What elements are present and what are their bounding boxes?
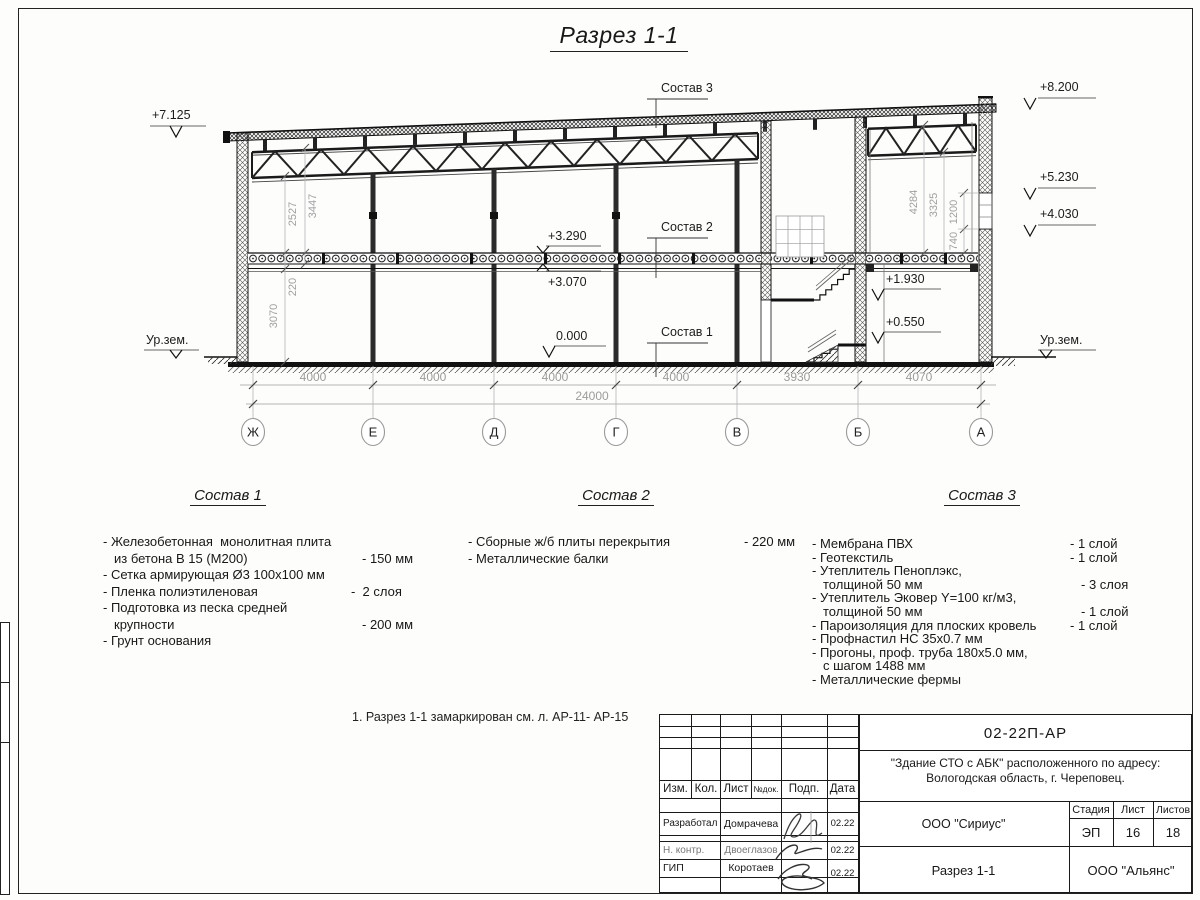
vdim-3325: 3325 — [928, 193, 940, 217]
tb-col-list: Лист — [721, 780, 751, 798]
tb-sheets-label: Листов — [1153, 801, 1193, 818]
tb-stage-label: Стадия — [1069, 801, 1113, 818]
composition-1: Состав 1 - Железобетонная монолитная пли… — [103, 487, 413, 650]
binding-box-1 — [0, 622, 10, 684]
span-dim: 4000 — [420, 370, 447, 384]
tb-sheet-value: 16 — [1113, 818, 1153, 846]
layer-label-3: Состав 3 — [661, 81, 713, 95]
elevation-label: +8.200 — [1040, 80, 1079, 94]
tb-sheet-label: Лист — [1113, 801, 1153, 818]
composition-item: толщиной 50 мм- 1 слой — [812, 605, 1142, 619]
span-dim: 4000 — [300, 370, 327, 384]
composition-item: - Геотекстиль- 1 слой — [812, 551, 1142, 565]
span-dim: 4000 — [663, 370, 690, 384]
composition-item: - Пароизоляция для плоских кровель- 1 сл… — [812, 619, 1142, 633]
tb-col-kol: Кол. — [691, 780, 721, 798]
vdim-3070: 3070 — [268, 304, 280, 328]
tb-project-line1: "Здание СТО с АБК" расположенного по адр… — [858, 755, 1193, 770]
composition-item: - Утеплитель Пеноплэкс, — [812, 564, 1142, 578]
axis-label: В — [733, 425, 742, 440]
title-block: Изм. Кол. Лист №док. Подп. Дата Разработ… — [659, 714, 1192, 893]
composition-item: - Пленка полиэтиленовая- 2 слоя — [103, 584, 413, 601]
composition-3-title: Состав 3 — [812, 487, 1152, 506]
tb-date-gip: 02.22 — [827, 864, 858, 882]
binding-box-3 — [0, 742, 10, 895]
elevation-label: +4.030 — [1040, 207, 1079, 221]
ground-level-label: Ур.зем. — [146, 333, 188, 347]
composition-item: с шагом 1488 мм — [812, 659, 1142, 673]
composition-item: - Прогоны, проф. труба 180х5.0 мм, — [812, 646, 1142, 660]
layer-leaders: Состав 3 Состав 2 Состав 1 — [647, 81, 713, 377]
composition-item: - Мембрана ПВХ- 1 слой — [812, 537, 1142, 551]
vdim-2527: 2527 — [287, 202, 299, 226]
axis-bubbles: Ж Е Д Г В Б А — [242, 419, 993, 446]
section-drawing: +7.125 +8.200 +5.230 +4.030 +3.290 +3.07… — [0, 0, 1200, 470]
elevation-label: +3.070 — [548, 275, 587, 289]
ground-level-label: Ур.зем. — [1040, 333, 1082, 347]
staircase — [771, 216, 866, 362]
span-dim: 4070 — [906, 370, 933, 384]
total-dim: 24000 — [575, 389, 609, 403]
composition-item: - Утеплитель Эковер Y=100 кг/м3, — [812, 591, 1142, 605]
tb-sheets-value: 18 — [1153, 818, 1193, 846]
bottom-dimensions: 4000 4000 4000 4000 3930 4070 24000 Ж Е … — [240, 366, 996, 446]
window-opening — [979, 193, 992, 229]
composition-1-title: Состав 1 — [103, 487, 353, 506]
floor-slab — [248, 253, 978, 272]
sheet-note: 1. Разрез 1-1 замаркирован см. л. АР-11-… — [352, 710, 628, 724]
composition-item: - Металлические балки — [468, 551, 800, 568]
binding-box-2 — [0, 682, 10, 744]
tb-project-line2: Вологодская область, г. Череповец. — [858, 770, 1193, 785]
tb-role-developer: Разработал — [660, 812, 724, 835]
tb-col-podp: Подп. — [781, 780, 827, 798]
composition-item: - Профнастил НС 35х0.7 мм — [812, 632, 1142, 646]
elevation-label: +7.125 — [152, 108, 191, 122]
composition-item: - Грунт основания — [103, 633, 413, 650]
elevation-label: +3.290 — [548, 229, 587, 243]
axis-label: Г — [612, 425, 619, 440]
layer-label-1: Состав 1 — [661, 325, 713, 339]
elevation-label: +5.230 — [1040, 170, 1079, 184]
composition-item: - Подготовка из песка средней — [103, 600, 413, 617]
vdim-740: 740 — [948, 232, 960, 250]
composition-item: - Металлические фермы — [812, 673, 1142, 687]
span-dim: 4000 — [542, 370, 569, 384]
tb-role-ncontrol: Н. контр. — [660, 841, 724, 859]
elevation-label: 0.000 — [556, 329, 587, 343]
composition-3: Состав 3 - Мембрана ПВХ- 1 слой - Геотек… — [812, 487, 1142, 687]
tb-stage-value: ЭП — [1069, 818, 1113, 846]
elevation-label: +1.930 — [886, 272, 925, 286]
tb-col-ndok: №док. — [751, 780, 781, 798]
tb-date-ncontrol: 02.22 — [827, 841, 858, 859]
axis-label: Д — [490, 425, 499, 440]
tb-sheet-title: Разрез 1-1 — [858, 846, 1069, 894]
vdim-3447: 3447 — [307, 194, 319, 218]
elevation-label: +0.550 — [886, 315, 925, 329]
tb-col-izm: Изм. — [660, 780, 691, 798]
tb-org1: ООО "Сириус" — [858, 801, 1069, 846]
axis-label: А — [977, 425, 986, 440]
vdim-1200: 1200 — [948, 200, 960, 224]
axis-label: Ж — [247, 425, 259, 440]
truss-1 — [252, 133, 758, 182]
truss-2 — [868, 125, 976, 160]
axis-label: Е — [369, 425, 378, 440]
axis-label: Б — [854, 425, 863, 440]
tb-org2: ООО "Альянс" — [1069, 846, 1193, 894]
composition-item: толщиной 50 мм- 3 слоя — [812, 578, 1142, 592]
composition-item: - Железобетонная монолитная плита — [103, 534, 413, 551]
tb-doc-code: 02-22П-АР — [858, 719, 1193, 747]
tb-date-developer: 02.22 — [827, 814, 858, 832]
composition-item: - Сетка армирующая Ø3 100х100 мм — [103, 567, 413, 584]
composition-item: из бетона В 15 (М200)- 150 мм — [103, 551, 413, 568]
layer-label-2: Состав 2 — [661, 220, 713, 234]
tb-role-gip: ГИП — [660, 859, 724, 877]
span-dim: 3930 — [784, 370, 811, 384]
vdim-220: 220 — [287, 278, 299, 296]
vdim-4284: 4284 — [908, 190, 920, 214]
composition-2-title: Состав 2 — [468, 487, 764, 506]
composition-item: - Сборные ж/б плиты перекрытия- 220 мм — [468, 534, 800, 551]
signature-gip — [772, 839, 830, 893]
composition-item: крупности- 200 мм — [103, 617, 413, 634]
tb-name-developer: Домрачева — [721, 812, 781, 835]
composition-2: Состав 2 - Сборные ж/б плиты перекрытия-… — [468, 487, 800, 567]
tb-col-data: Дата — [827, 780, 858, 798]
